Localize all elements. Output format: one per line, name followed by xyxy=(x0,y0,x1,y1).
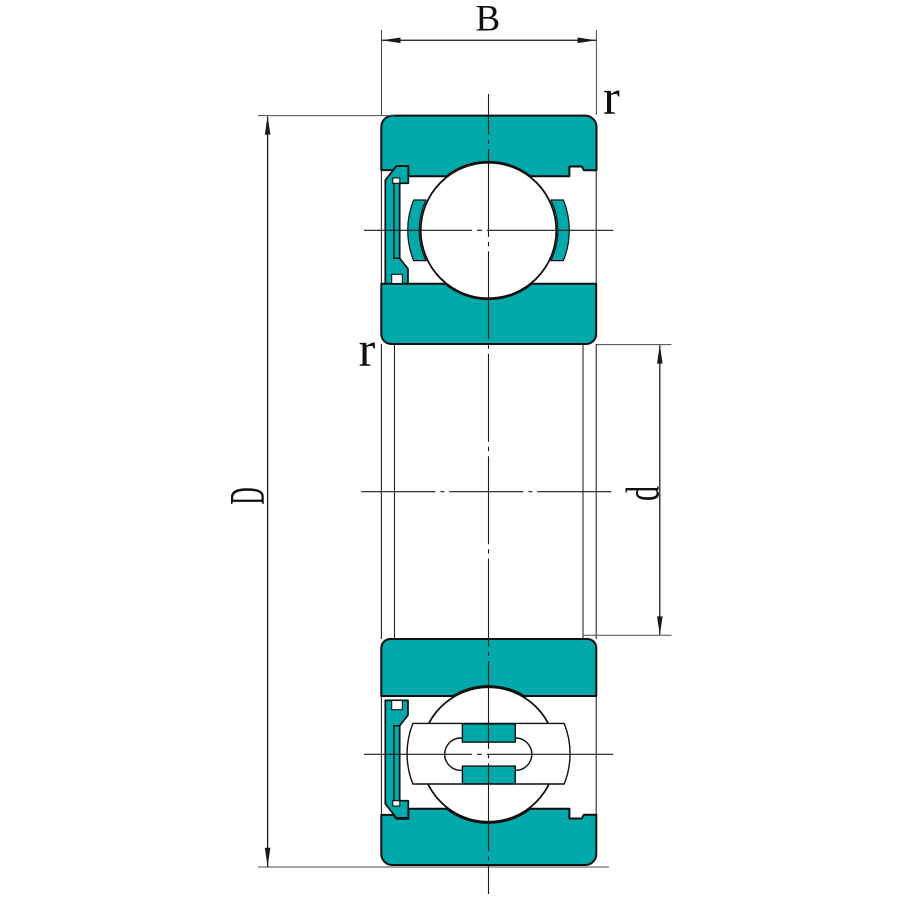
svg-text:r: r xyxy=(603,69,620,125)
svg-text:r: r xyxy=(359,321,376,377)
svg-text:B: B xyxy=(475,0,500,39)
svg-text:d: d xyxy=(615,486,669,501)
svg-text:D: D xyxy=(220,487,275,504)
